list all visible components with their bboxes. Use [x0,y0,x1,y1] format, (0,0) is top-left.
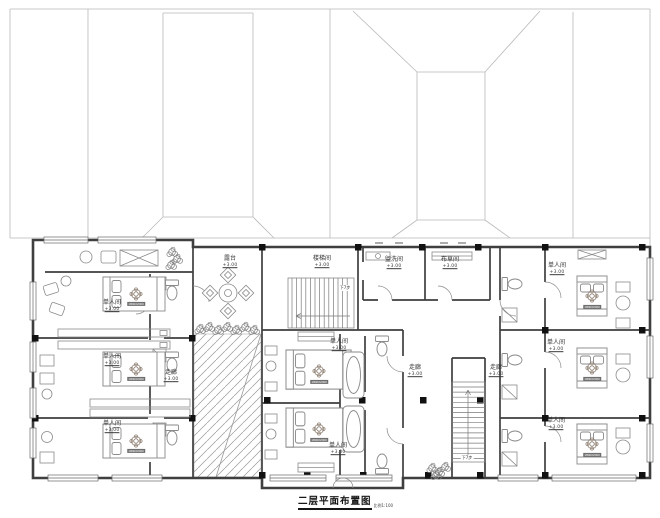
room-elevation: +3.00 [103,361,121,367]
staircase-secondary [452,382,485,462]
room-name: 露台 [224,255,236,262]
toilet-icon [502,354,522,367]
bed-size-tag: 1800X2000 [583,377,601,381]
room-label-corridor-center: 走廊+3.00 [408,364,423,378]
room-name: 走廊 [165,369,177,376]
plant-icon [222,322,233,331]
room-elevation: +3.00 [103,307,121,313]
drawing-scale: 比例1:100 [374,503,394,510]
room-label-single-left-2: 单人间+3.00 [103,353,121,367]
room-name: 盥洗间 [385,256,403,263]
terrace-chairs [202,267,254,319]
stair-note-secondary: 下7步 [461,455,474,461]
room-elevation: +3.00 [547,347,565,353]
bed-size-tag: 1800X2000 [583,305,601,309]
toilet-icon [502,278,522,291]
toilet-icon [376,336,389,356]
bed-size-tag: 1800X2000 [583,453,601,457]
room-elevation: +3.00 [489,372,504,378]
toilet-icon [166,425,179,445]
drawing-title-block: 二层平面布置图 比例1:100 [298,493,393,510]
room-name: 走廊 [490,364,502,371]
room-elevation: +3.00 [441,264,459,270]
toilet-icon [166,280,179,300]
bathtub-icon [343,352,364,398]
stair-note-main: 下7步 [339,285,352,291]
bed-size-tag: 1800X2000 [127,377,145,381]
room-name: 单人间 [329,442,347,449]
room-label-single-right-2: 单人间+3.00 [547,339,565,353]
room-elevation: +3.00 [385,264,403,270]
room-elevation: +3.00 [313,263,331,269]
room-label-corridor-right: 走廊+3.00 [489,364,504,378]
toilet-icon [376,454,389,474]
room-label-corridor-left: 走廊+3.00 [164,369,179,383]
room-name: 单人间 [103,353,121,360]
room-elevation: +3.00 [223,263,238,269]
room-elevation: +3.00 [547,425,565,431]
bed-size-tag: 1800X2000 [127,449,145,453]
room-label-single-center-2: 单人间+3.00 [329,442,347,456]
roof-plan [10,9,650,247]
bed-size-tag: 1800X2000 [310,380,328,384]
room-name: 单人间 [103,420,121,427]
hatched-roof-void [194,334,261,477]
room-name: 楼梯间 [313,255,331,262]
room-label-single-left-3: 单人间+3.00 [103,420,121,434]
plant-icon [240,322,251,331]
room-label-single-right-3: 单人间+3.00 [547,417,565,431]
room-name: 单人间 [547,339,565,346]
room-name: 单人间 [330,338,348,345]
hip-roof-left [142,13,274,238]
floor-plan-sheet: 单人间+3.00 单人间+3.00 单人间+3.00 单人间+3.00 单人间+… [0,0,660,518]
room-label-washroom: 盥洗间+3.00 [385,256,403,270]
room-name: 单人间 [103,299,121,306]
room-elevation: +3.00 [330,346,348,352]
room-label-single-center-1: 单人间+3.00 [330,338,348,352]
room-label-linen-room: 布草间+3.00 [441,256,459,270]
room-label-single-left-1: 单人间+3.00 [103,299,121,313]
plant-icon [167,247,178,256]
room-label-terrace: 露台+3.00 [223,255,238,269]
drawing-title: 二层平面布置图 [298,493,372,510]
plant-icon [249,325,260,334]
room-label-stair-room: 楼梯间+3.00 [313,255,331,269]
room-name: 布草间 [441,256,459,263]
room-elevation: +3.00 [164,377,179,383]
bed-size-tag: 1800X2000 [310,438,328,442]
room-name: 走廊 [409,364,421,371]
room-name: 单人间 [548,262,566,269]
toilet-icon [502,430,522,443]
sink-icon [80,251,92,263]
room-label-single-right-1: 单人间+3.00 [548,262,566,276]
room-elevation: +3.00 [329,450,347,456]
room-elevation: +3.00 [548,270,566,276]
bed-size-tag: 1800X2000 [127,302,145,306]
room-name: 单人间 [547,417,565,424]
room-elevation: +3.00 [408,372,423,378]
hip-roof-right [353,11,540,238]
room-elevation: +3.00 [103,428,121,434]
